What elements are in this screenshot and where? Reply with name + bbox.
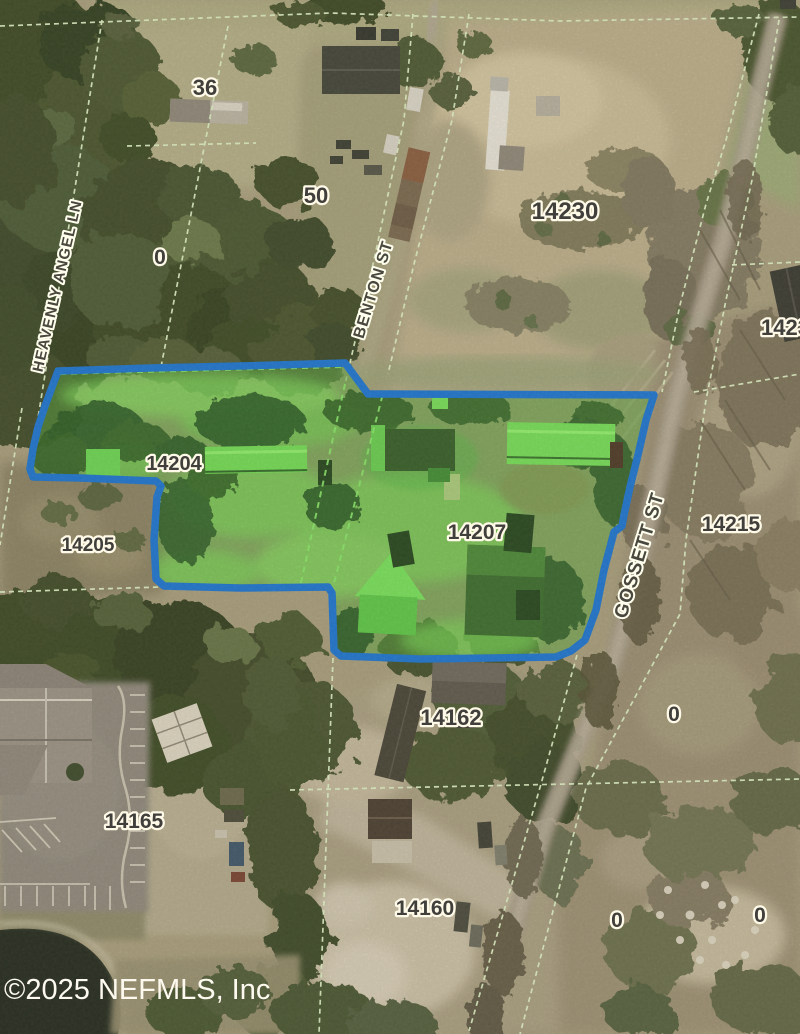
svg-text:0: 0: [668, 703, 680, 726]
svg-text:14204: 14204: [146, 453, 202, 475]
svg-text:14205: 14205: [62, 535, 115, 556]
svg-text:14165: 14165: [105, 810, 164, 833]
svg-text:1423: 1423: [761, 315, 800, 340]
svg-text:0: 0: [154, 246, 166, 269]
svg-text:36: 36: [193, 75, 217, 100]
svg-text:14207: 14207: [448, 521, 506, 544]
svg-text:14215: 14215: [702, 513, 761, 536]
svg-text:14230: 14230: [532, 198, 599, 225]
svg-text:14160: 14160: [396, 897, 454, 920]
svg-text:0: 0: [754, 904, 766, 927]
svg-text:0: 0: [611, 909, 623, 932]
svg-text:14162: 14162: [420, 705, 481, 730]
svg-text:©2025 NEFMLS, Inc: ©2025 NEFMLS, Inc: [4, 974, 270, 1006]
svg-text:50: 50: [304, 183, 328, 208]
